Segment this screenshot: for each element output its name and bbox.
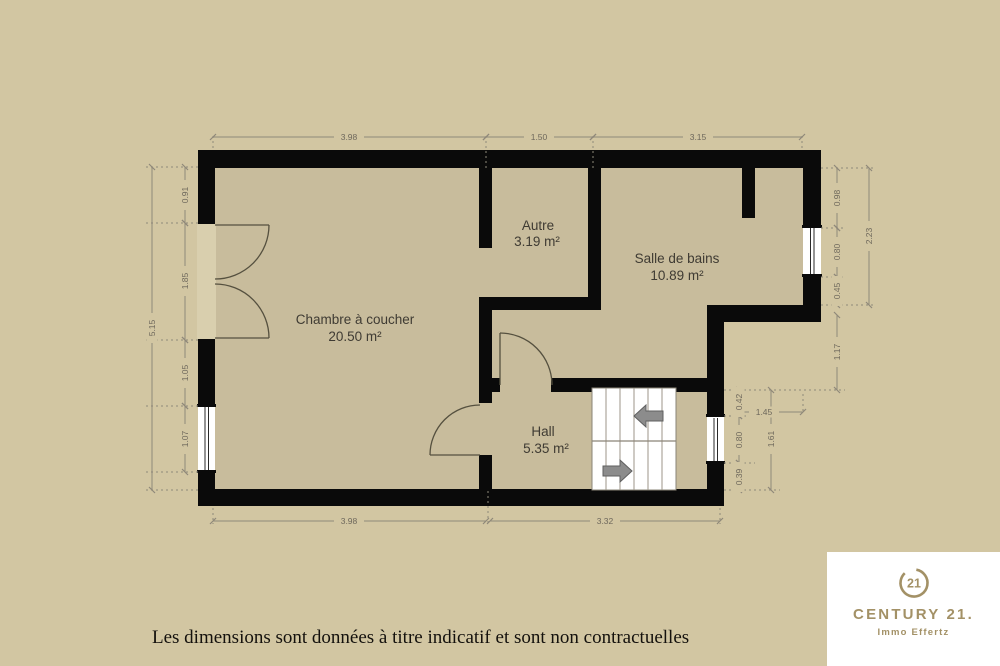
room-name-bedroom: Chambre à coucher	[296, 312, 415, 327]
window-right	[802, 225, 822, 277]
century21-seal-icon: 21	[896, 565, 932, 601]
room-area-bathroom: 10.89 m²	[650, 268, 704, 283]
dimension-label: 1.05	[180, 364, 190, 381]
floor-plan-page: 3.98 1.50 3.15 3.98 3.32 5.15 0.91 1.85 …	[0, 0, 1000, 666]
agency-name: Immo Effertz	[878, 627, 950, 638]
dimension-label: 0.98	[832, 189, 842, 206]
dimension-label: 1.50	[531, 132, 548, 142]
stairs	[592, 388, 676, 490]
dimension-label: 3.15	[690, 132, 707, 142]
dimension-label: 0.80	[832, 243, 842, 260]
window-stairs	[706, 414, 725, 464]
disclaimer-text: Les dimensions sont données à titre indi…	[152, 627, 689, 649]
dimension-label: 0.80	[734, 431, 744, 448]
dimension-label: 3.98	[341, 516, 358, 526]
dimension-label: 2.23	[864, 227, 874, 244]
room-name-other: Autre	[522, 218, 554, 233]
dimension-label: 1.45	[756, 407, 773, 417]
century21-logo-card: 21 CENTURY 21. Immo Effertz	[827, 552, 1000, 666]
seal-number: 21	[907, 577, 921, 591]
room-area-hall: 5.35 m²	[523, 441, 569, 456]
dimension-label: 3.32	[597, 516, 614, 526]
dimension-label: 1.07	[180, 430, 190, 447]
dimension-label: 1.61	[766, 430, 776, 447]
dimension-label: 0.45	[832, 282, 842, 299]
dimension-label: 1.85	[180, 272, 190, 289]
dimension-label: 0.42	[734, 393, 744, 410]
dimension-label: 5.15	[147, 319, 157, 336]
entry-opening	[197, 224, 216, 339]
dimension-label: 1.17	[832, 343, 842, 360]
dimension-label: 0.91	[180, 186, 190, 203]
dimension-label: 0.39	[734, 468, 744, 485]
room-name-bathroom: Salle de bains	[635, 251, 720, 266]
room-area-bedroom: 20.50 m²	[328, 329, 382, 344]
dimension-label: 3.98	[341, 132, 358, 142]
room-area-other: 3.19 m²	[514, 234, 560, 249]
outer-walls	[198, 150, 821, 506]
window-left	[197, 404, 216, 473]
room-name-hall: Hall	[531, 424, 554, 439]
brand-name: CENTURY 21.	[853, 606, 974, 623]
